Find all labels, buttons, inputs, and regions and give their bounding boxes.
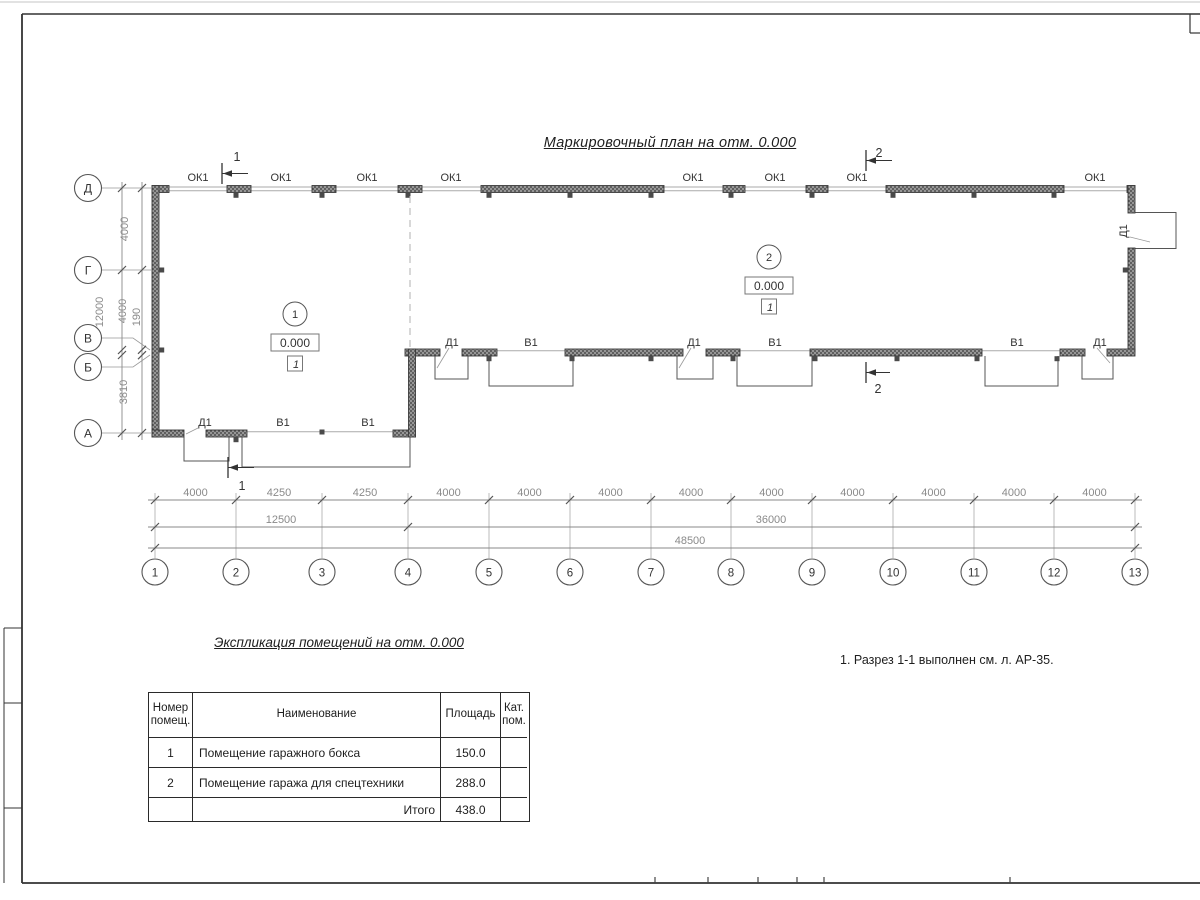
row-grid-label: Г: [85, 263, 92, 277]
column-tick: [810, 193, 815, 198]
gate-apron: [985, 356, 1058, 386]
column-tick: [234, 193, 239, 198]
table-cell: Помещение гаража для спецтехники: [193, 768, 441, 798]
column-grid-label: 2: [233, 567, 239, 579]
column-grid-label: 8: [728, 567, 734, 579]
dim-text-bottom: 4000: [840, 487, 864, 499]
dim-text-left: 4000: [117, 299, 129, 323]
exterior-wall-top: [227, 186, 251, 193]
column-grid-label: 10: [887, 567, 900, 579]
door-label: Д1: [687, 337, 701, 349]
exterior-wall-right: [1128, 186, 1135, 214]
dim-text-bottom: 4250: [353, 487, 377, 499]
dim-text-bottom: 4000: [679, 487, 703, 499]
dim-text-bottom: 4000: [517, 487, 541, 499]
table-cell: [149, 798, 193, 821]
section-mark-number: 1: [239, 479, 246, 493]
room-elevation: 0.000: [280, 336, 310, 350]
column-tick: [568, 193, 573, 198]
wall-row-v: [565, 349, 683, 356]
window-label: ОК1: [764, 172, 785, 184]
dim-text-bottom: 12500: [266, 514, 297, 526]
dim-text-bottom: 48500: [675, 535, 706, 547]
dim-text-bottom: 4250: [267, 487, 291, 499]
gate-label: В1: [768, 337, 781, 349]
window-label: ОК1: [356, 172, 377, 184]
dim-text-bottom: 4000: [436, 487, 460, 499]
room-number: 2: [766, 252, 772, 264]
row-grid-label: Д: [84, 181, 92, 195]
exterior-wall-top: [312, 186, 336, 193]
window-label: ОК1: [187, 172, 208, 184]
door-label: Д1: [198, 417, 212, 429]
dim-text-bottom: 4000: [1082, 487, 1106, 499]
room-schedule-table: Номер помещ.НаименованиеПлощадьКат. пом.…: [148, 692, 530, 822]
column-grid-label: 12: [1048, 567, 1061, 579]
door-recess: [1082, 356, 1113, 379]
wall-row-a: [152, 430, 184, 437]
room-elevation: 0.000: [754, 279, 784, 293]
table-header-cell: Кат. пом.: [501, 693, 527, 738]
column-grid-label: 6: [567, 567, 573, 579]
column-grid-label: 9: [809, 567, 815, 579]
door-recess: [677, 356, 713, 379]
exterior-wall-top: [481, 186, 664, 193]
door-leader: [186, 428, 198, 434]
wall-row-v: [1107, 349, 1135, 356]
window-label: ОК1: [270, 172, 291, 184]
column-tick: [649, 193, 654, 198]
table-cell: 2: [149, 768, 193, 798]
dim-text-bottom: 36000: [756, 514, 787, 526]
exterior-wall-top: [806, 186, 828, 193]
door-label: Д1: [445, 337, 459, 349]
door-recess: [184, 437, 229, 461]
section-mark-number: 2: [876, 146, 883, 160]
wall-grid4: [409, 349, 416, 437]
window-label: ОК1: [846, 172, 867, 184]
column-tick: [891, 193, 896, 198]
drawing-title: Маркировочный план на отм. 0.000: [500, 135, 840, 151]
wall-row-v: [706, 349, 740, 356]
floor-type: 1: [767, 302, 773, 314]
table-header-cell: Наименование: [193, 693, 441, 738]
dim-text-bottom: 4000: [759, 487, 783, 499]
dim-text-bottom: 4000: [1002, 487, 1026, 499]
row-grid-label: В: [84, 331, 92, 345]
dim-text-bottom: 4000: [183, 487, 207, 499]
column-tick: [159, 348, 164, 353]
column-tick: [234, 437, 239, 442]
section-mark-arrow: [229, 464, 238, 471]
wall-row-v: [1060, 349, 1085, 356]
section-mark-arrow: [867, 369, 876, 376]
section-mark-arrow: [223, 170, 232, 177]
gate-apron: [489, 356, 573, 386]
dim-text-bottom: 4000: [598, 487, 622, 499]
gate-label: В1: [1010, 337, 1023, 349]
section-mark-number: 1: [234, 150, 241, 164]
column-tick: [972, 193, 977, 198]
door-leader: [1130, 237, 1150, 242]
table-cell: [501, 768, 527, 798]
column-grid-label: 4: [405, 567, 412, 579]
column-grid-label: 7: [648, 567, 654, 579]
column-tick: [731, 356, 736, 361]
exterior-wall-top: [398, 186, 422, 193]
exterior-wall-top: [886, 186, 1064, 193]
column-tick: [570, 356, 575, 361]
column-tick: [649, 356, 654, 361]
table-cell: 1: [149, 738, 193, 768]
row-leader: [101, 355, 150, 367]
exterior-wall-top: [723, 186, 745, 193]
dim-text-left: 190: [131, 308, 143, 326]
dim-text-left: 12000: [94, 297, 106, 328]
wall-row-a: [206, 430, 247, 437]
column-grid-label: 11: [968, 567, 980, 579]
room-schedule-title: Экспликация помещений на отм. 0.000: [150, 635, 528, 650]
gate-label: В1: [524, 337, 537, 349]
window-label: ОК1: [440, 172, 461, 184]
gate-apron: [737, 356, 812, 386]
gate-label: В1: [361, 417, 374, 429]
drawing-note: 1. Разрез 1-1 выполнен см. л. АР-35.: [840, 653, 1054, 667]
table-cell: Помещение гаражного бокса: [193, 738, 441, 768]
door-recess: [435, 356, 468, 379]
window-label: ОК1: [1084, 172, 1105, 184]
door-label: Д1: [1093, 337, 1107, 349]
drawing-sheet: 12000400040001903810ДГВБА400042504250400…: [0, 0, 1200, 900]
door-recess: [1135, 213, 1176, 249]
gate-apron: [242, 437, 410, 467]
floor-type: 1: [293, 359, 299, 371]
column-tick: [487, 356, 492, 361]
column-tick: [1052, 193, 1057, 198]
row-grid-label: А: [84, 426, 92, 440]
column-tick: [813, 356, 818, 361]
exterior-wall-left: [152, 186, 159, 438]
gate-label: В1: [276, 417, 289, 429]
dim-text-left: 3810: [118, 380, 130, 404]
column-tick: [1055, 356, 1060, 361]
table-cell: [501, 798, 527, 821]
column-grid-label: 13: [1129, 567, 1142, 579]
dim-text-bottom: 4000: [921, 487, 945, 499]
room-number: 1: [292, 309, 298, 321]
column-grid-label: 3: [319, 567, 325, 579]
door-label: Д1: [1118, 224, 1130, 238]
column-tick: [975, 356, 980, 361]
table-cell: 288.0: [441, 768, 501, 798]
row-leader: [101, 338, 150, 350]
table-cell: 150.0: [441, 738, 501, 768]
wall-row-v: [462, 349, 497, 356]
column-tick: [729, 193, 734, 198]
row-grid-label: Б: [84, 360, 92, 374]
column-tick: [1123, 268, 1128, 273]
column-grid-label: 1: [152, 567, 158, 579]
column-tick: [320, 430, 325, 435]
column-tick: [159, 268, 164, 273]
column-tick: [895, 356, 900, 361]
table-header-cell: Площадь: [441, 693, 501, 738]
column-tick: [487, 193, 492, 198]
column-grid-label: 5: [486, 567, 492, 579]
wall-row-v: [810, 349, 982, 356]
table-cell: Итого: [193, 798, 441, 821]
exterior-wall-right: [1128, 248, 1135, 352]
section-mark-number: 2: [875, 382, 882, 396]
table-cell: [501, 738, 527, 768]
column-tick: [320, 193, 325, 198]
table-header-cell: Номер помещ.: [149, 693, 193, 738]
window-label: ОК1: [682, 172, 703, 184]
dim-text-left: 4000: [119, 217, 131, 241]
table-cell: 438.0: [441, 798, 501, 821]
